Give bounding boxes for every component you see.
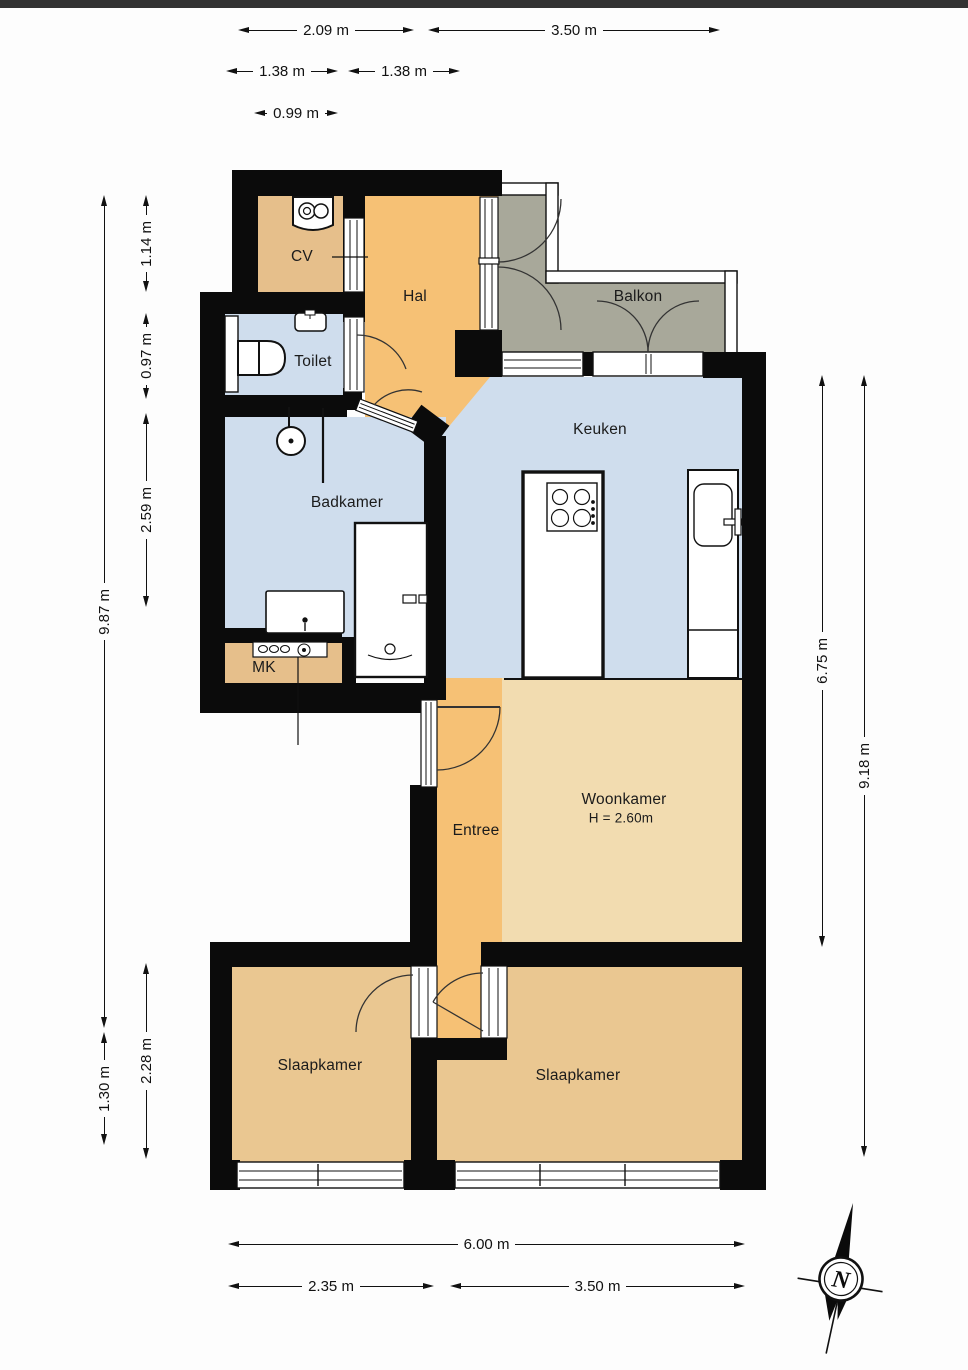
wall-bottom-left-corner [210, 1160, 240, 1190]
floorplan-page: N CV Hal Balkon Toilet Keuken Badkamer M… [0, 0, 968, 1370]
dim-top-2-09: 2.09 m [238, 21, 414, 39]
toilet-sink-icon [295, 310, 326, 331]
wall-diagonal-badkamer [413, 416, 441, 437]
room-label-hal: Hal [403, 288, 427, 306]
bathtub-icon [355, 523, 427, 677]
dim-top-1-38-left: 1.38 m [226, 62, 338, 80]
dim-top-0-99: 0.99 m [254, 104, 338, 122]
room-label-balkon: Balkon [614, 288, 663, 306]
room-label-slaapkamer-left: Slaapkamer [278, 1057, 363, 1075]
wall-toilet-badkamer [222, 395, 347, 417]
wall-slaapkamer-left-top [210, 942, 437, 967]
dim-bottom-6-00: 6.00 m [228, 1235, 745, 1253]
boiler-icon [293, 197, 333, 230]
wall-cv-left [232, 196, 258, 292]
wall-left-outer [200, 310, 225, 683]
front-door-frame [421, 700, 437, 787]
dim-left-2-59: 2.59 m [137, 413, 155, 607]
wall-mk-bottom [200, 683, 437, 713]
keuken-balcony-door-threshold [593, 352, 703, 376]
balkon-french-door-frame [479, 197, 499, 330]
room-label-keuken: Keuken [573, 421, 627, 439]
dim-left-9-87: 9.87 m [95, 195, 113, 1028]
room-label-woonkamer: Woonkamer [581, 791, 666, 809]
room-label-toilet: Toilet [294, 353, 331, 371]
dim-left-2-28: 2.28 m [137, 963, 155, 1159]
dim-left-0-97: 0.97 m [137, 313, 155, 399]
wall-entree-left [410, 785, 437, 965]
toilet-icon [238, 341, 285, 375]
dim-top-3-50: 3.50 m [428, 21, 720, 39]
dim-left-1-30: 1.30 m [95, 1032, 113, 1145]
wall-left-outer-bedroom [210, 942, 232, 1190]
wall-top-cv-hal [232, 170, 502, 196]
wall-corridor-end [411, 1038, 507, 1060]
room-label-entree: Entree [453, 822, 500, 840]
dim-bottom-2-35: 2.35 m [228, 1277, 434, 1295]
dim-right-6-75: 6.75 m [813, 375, 831, 947]
wall-bottom-pier [404, 1160, 455, 1190]
keuken-balcony-window [502, 352, 703, 376]
vanity-icon [266, 591, 344, 633]
room-label-woonkamer-height: H = 2.60m [589, 811, 653, 826]
room-label-slaapkamer-right: Slaapkamer [536, 1067, 621, 1085]
balcony-wall-right-lower [725, 271, 737, 355]
room-floor-balkon-lower [498, 283, 725, 355]
wall-bottom-right-corner [720, 1160, 766, 1190]
wall-window-mullion [583, 352, 593, 376]
slaapkamer-right-door-frame [481, 966, 507, 1038]
slaapkamer-left-window [237, 1162, 404, 1188]
room-label-badkamer: Badkamer [311, 494, 383, 512]
wall-right-outer [742, 352, 766, 1190]
wall-woonkamer-bottom [481, 942, 766, 967]
compass-rose: N [787, 1196, 896, 1361]
balcony-wall-step [546, 271, 737, 283]
stove-icon [547, 483, 597, 531]
kitchen-island [523, 472, 603, 678]
dim-top-1-38-right: 1.38 m [348, 62, 460, 80]
cv-door-frame [344, 218, 364, 292]
toilet-door-frame [344, 317, 364, 392]
balcony-wall-right-upper [546, 183, 558, 283]
wall-stub-hal-keuken [455, 330, 502, 377]
toilet-duct-niche [225, 316, 238, 392]
dim-left-1-14: 1.14 m [137, 195, 155, 292]
room-label-cv: CV [291, 248, 313, 266]
slaapkamer-right-window [455, 1162, 720, 1188]
dim-bottom-3-50: 3.50 m [450, 1277, 745, 1295]
room-label-mk: MK [252, 659, 276, 677]
kitchen-counter [688, 470, 742, 678]
dim-right-9-18: 9.18 m [855, 375, 873, 1157]
